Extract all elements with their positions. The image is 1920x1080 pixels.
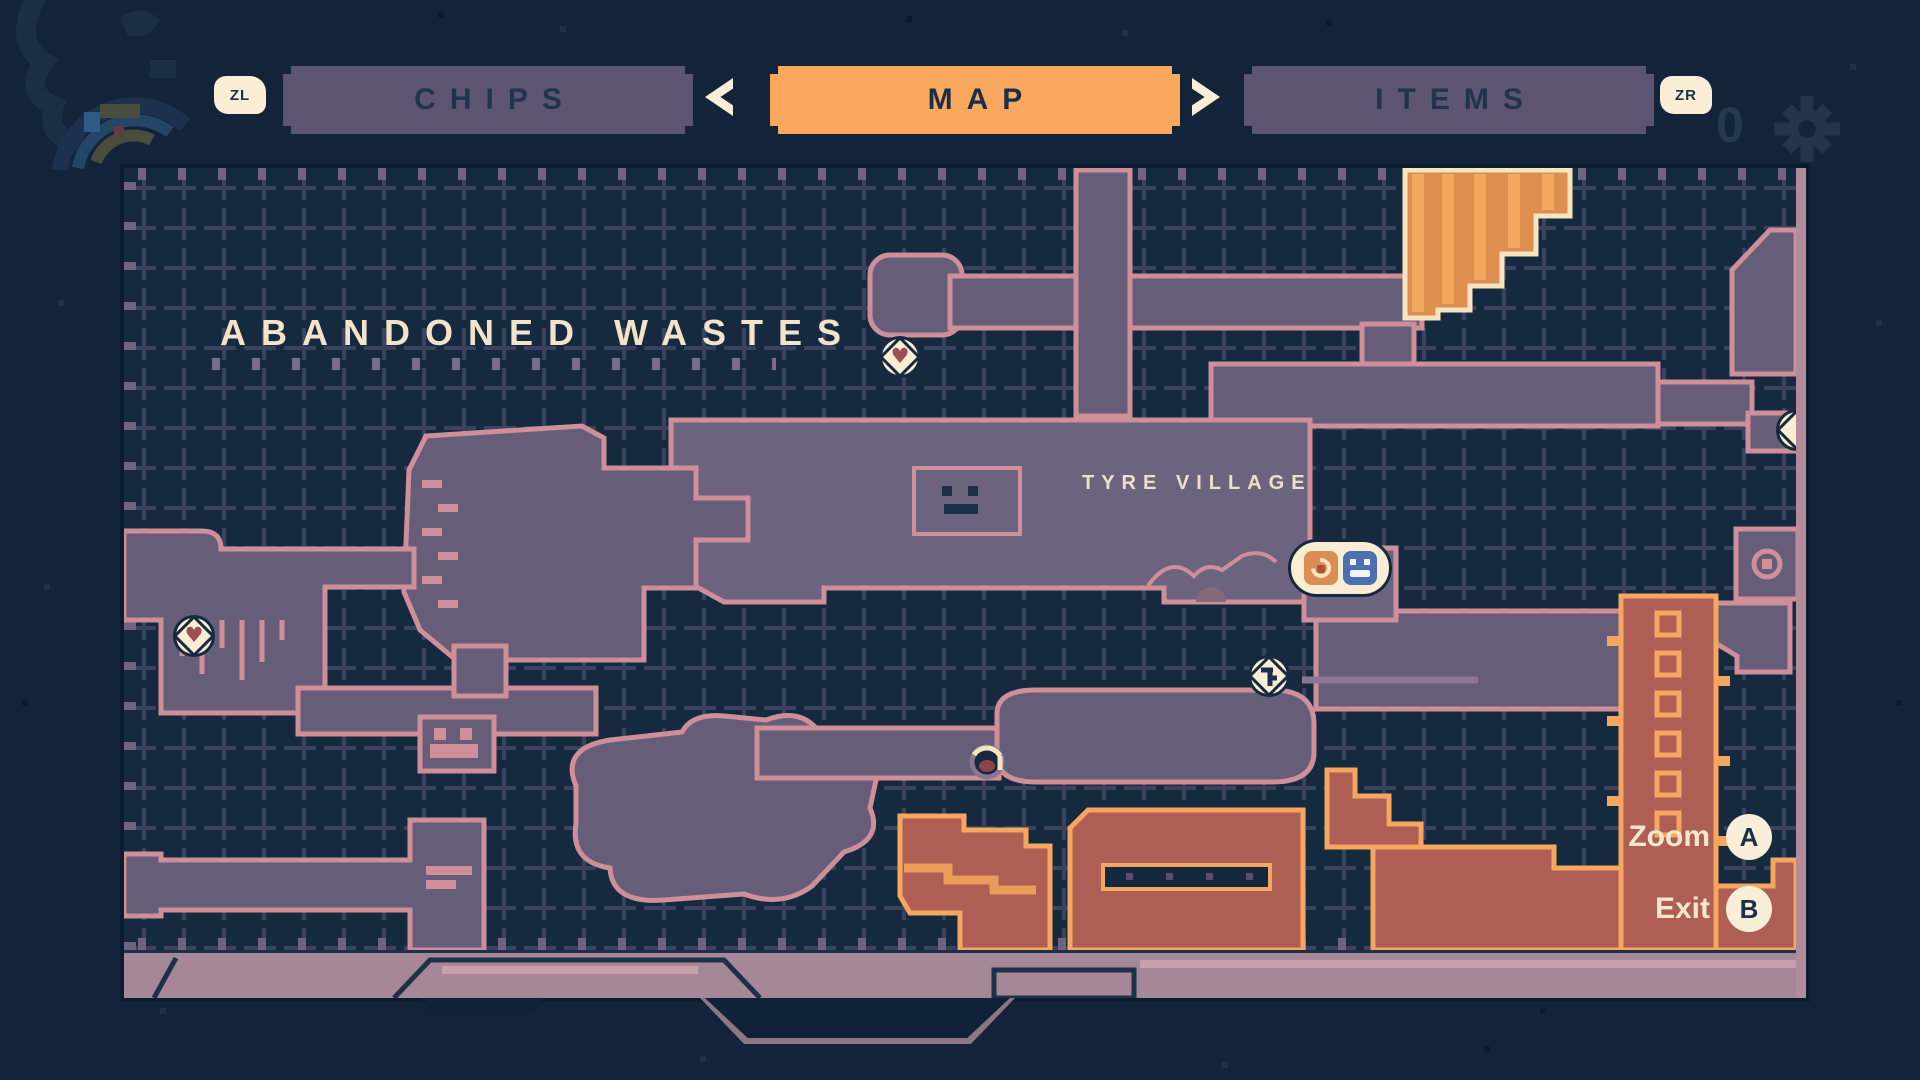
exit-label: Exit	[1655, 892, 1710, 926]
tab-items-label: ITEMS	[1375, 83, 1537, 117]
zoom-control[interactable]: Zoom A	[1628, 814, 1772, 860]
area-title: TYRE VILLAGE	[1082, 472, 1312, 495]
tab-chips[interactable]: CHIPS	[283, 66, 693, 134]
shoulder-button-zl[interactable]: ZL	[214, 76, 266, 114]
settings-gear-icon	[1772, 94, 1842, 164]
tab-chips-label: CHIPS	[414, 83, 576, 117]
shop-icon	[1304, 551, 1338, 585]
heart-icon: ♥	[185, 625, 204, 646]
coin-count: 0	[1716, 96, 1744, 154]
game-screen: 0 ZL CHIPS MAP ITEMS ZR	[0, 0, 1920, 1080]
key-item-marker	[1248, 655, 1290, 697]
console-dock-large	[705, 998, 1010, 1038]
tab-items[interactable]: ITEMS	[1244, 66, 1654, 134]
player-position-marker	[965, 740, 1009, 784]
console-dock-small	[420, 998, 545, 1016]
exit-control[interactable]: Exit B	[1655, 886, 1772, 932]
map-canvas	[124, 168, 1796, 950]
shoulder-button-zr[interactable]: ZR	[1660, 76, 1712, 114]
map-panel: ABANDONED WASTES TYRE VILLAGE ♥ ♥	[120, 164, 1810, 1002]
health-station-marker-left: ♥	[173, 615, 215, 657]
region-title: ABANDONED WASTES	[220, 312, 856, 354]
next-tab-arrow-icon[interactable]	[1192, 78, 1220, 116]
map-frame-bottom	[124, 950, 1796, 998]
button-a[interactable]: A	[1726, 814, 1772, 860]
tab-map-label: MAP	[928, 83, 1037, 117]
save-station-icon	[1343, 551, 1377, 585]
map-frame-right-edge	[1796, 168, 1806, 998]
zoom-label: Zoom	[1628, 820, 1710, 854]
heart-icon: ♥	[891, 346, 910, 367]
button-b[interactable]: B	[1726, 886, 1772, 932]
background-noise-pixels	[0, 0, 6, 6]
health-station-marker-top: ♥	[879, 336, 921, 378]
prev-tab-arrow-icon[interactable]	[705, 78, 733, 116]
village-services-marker	[1288, 539, 1392, 597]
key-icon	[1256, 663, 1282, 689]
tab-map[interactable]: MAP	[770, 66, 1180, 134]
